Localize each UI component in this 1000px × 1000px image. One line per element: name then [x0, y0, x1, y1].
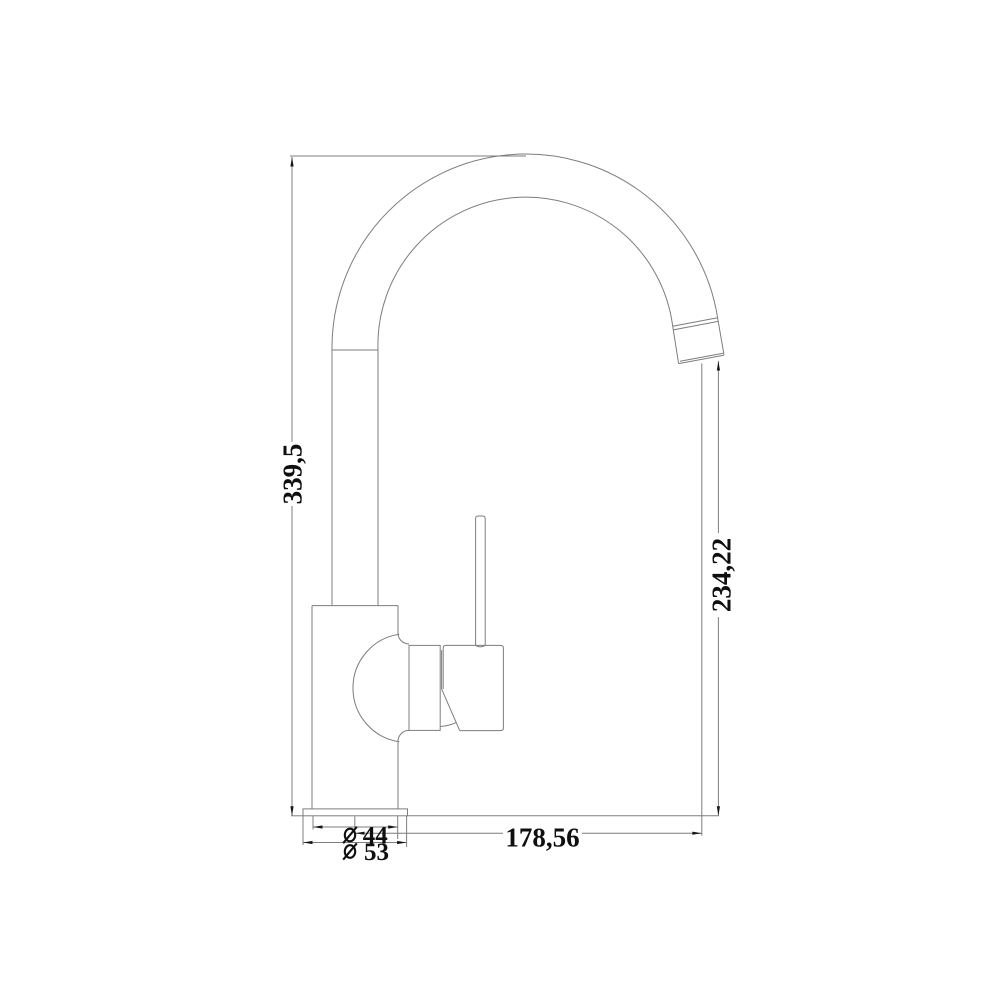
svg-text:178,56: 178,56 — [505, 823, 579, 853]
svg-text:53: 53 — [364, 839, 389, 866]
svg-text:339,5: 339,5 — [278, 444, 308, 505]
svg-text:234,22: 234,22 — [707, 538, 737, 612]
